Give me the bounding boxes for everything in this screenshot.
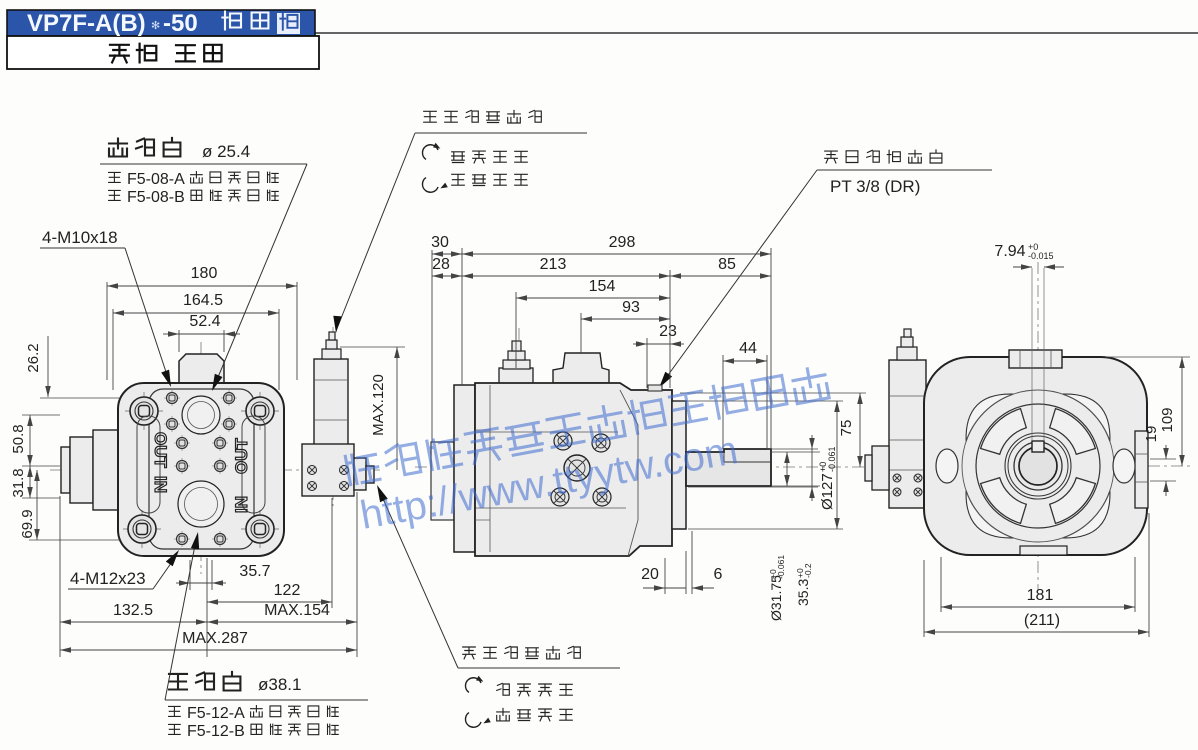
svg-text:VP7F-A(B): VP7F-A(B) <box>27 10 146 37</box>
svg-text:28: 28 <box>432 256 450 273</box>
svg-text:Ø127: Ø127 <box>819 473 836 510</box>
svg-text:122: 122 <box>274 582 301 599</box>
svg-text:69.9: 69.9 <box>19 509 36 538</box>
svg-text:(211): (211) <box>1024 612 1060 629</box>
svg-text:4-M10x18: 4-M10x18 <box>42 228 118 247</box>
svg-text:50.8: 50.8 <box>10 424 27 453</box>
svg-text:F5-08-A: F5-08-A <box>127 171 185 188</box>
svg-text:6: 6 <box>714 566 723 583</box>
svg-text:298: 298 <box>609 234 636 251</box>
svg-text:F5-08-B: F5-08-B <box>127 189 185 206</box>
svg-text:MAX.287: MAX.287 <box>182 630 248 647</box>
svg-text:F5-12-B: F5-12-B <box>187 723 245 740</box>
svg-text:181: 181 <box>1027 587 1054 604</box>
svg-text:ø 25.4: ø 25.4 <box>202 142 250 161</box>
svg-text:Ø31.75: Ø31.75 <box>768 575 784 621</box>
svg-text:30: 30 <box>431 234 449 251</box>
svg-text:OUT: OUT <box>151 432 170 469</box>
svg-text:44: 44 <box>739 340 757 357</box>
svg-text:-0.061: -0.061 <box>776 555 786 579</box>
svg-text:26.2: 26.2 <box>25 343 42 372</box>
svg-text:-0.2: -0.2 <box>803 563 813 578</box>
svg-text:F5-12-A: F5-12-A <box>187 705 245 722</box>
svg-text:MAX.120: MAX.120 <box>370 374 387 436</box>
svg-text:164.5: 164.5 <box>183 292 223 309</box>
svg-text:20: 20 <box>641 566 659 583</box>
svg-text:-50: -50 <box>163 10 198 37</box>
svg-text:PT 3/8 (DR): PT 3/8 (DR) <box>830 177 920 196</box>
svg-text:IN: IN <box>232 496 251 513</box>
svg-text:154: 154 <box>589 278 616 295</box>
svg-text:75: 75 <box>838 420 855 437</box>
svg-text:109: 109 <box>1159 407 1176 432</box>
svg-text:35.3: 35.3 <box>795 579 811 606</box>
svg-text:4-M12x23: 4-M12x23 <box>70 569 146 588</box>
svg-text:52.4: 52.4 <box>189 313 220 330</box>
svg-text:-0.015: -0.015 <box>1028 251 1054 261</box>
svg-text:85: 85 <box>718 256 736 273</box>
svg-text:OUT: OUT <box>232 438 251 475</box>
svg-text:MAX.154: MAX.154 <box>264 602 330 619</box>
svg-text:35.7: 35.7 <box>239 563 270 580</box>
svg-text:23: 23 <box>659 323 677 340</box>
svg-text:213: 213 <box>540 256 567 273</box>
svg-text:ø38.1: ø38.1 <box>258 675 301 694</box>
svg-text:31.8: 31.8 <box>10 468 27 497</box>
svg-text:IN: IN <box>151 476 170 493</box>
svg-text:7.94: 7.94 <box>994 243 1025 260</box>
svg-text:93: 93 <box>622 299 640 316</box>
svg-text:✻: ✻ <box>151 20 160 32</box>
svg-text:19: 19 <box>1143 426 1160 443</box>
svg-text:-0.061: -0.061 <box>827 446 837 472</box>
svg-text:132.5: 132.5 <box>113 602 153 619</box>
svg-text:180: 180 <box>191 265 218 282</box>
